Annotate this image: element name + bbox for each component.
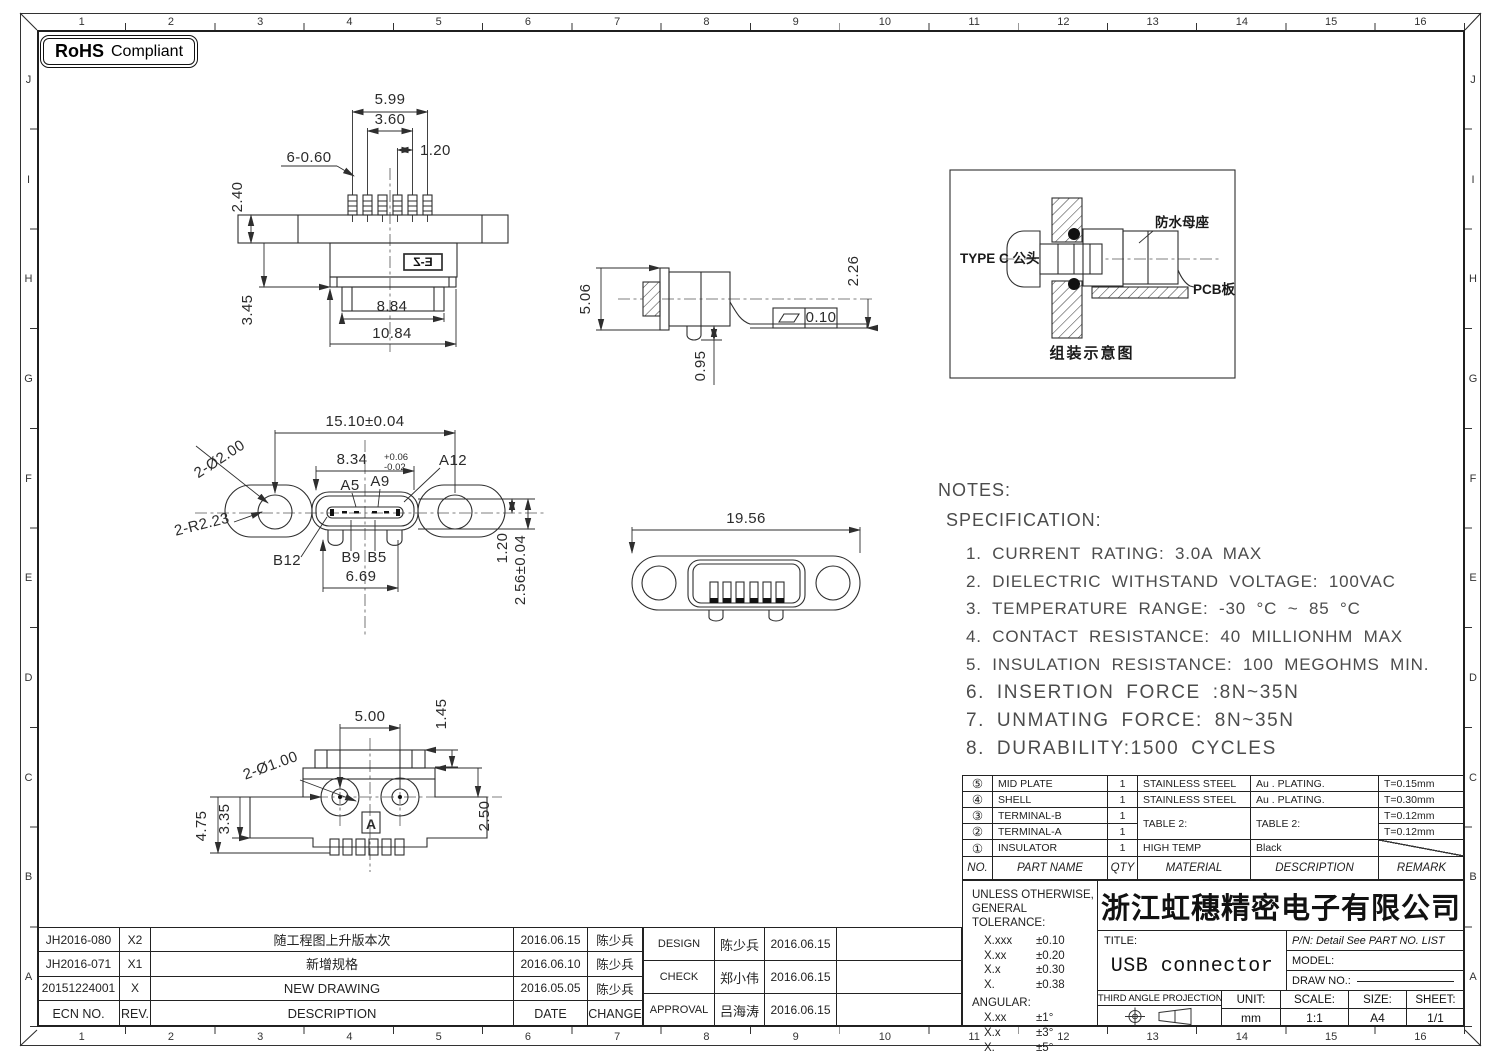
part-remark: T=0.12mm <box>1379 808 1464 824</box>
pin-label-a12: A12 <box>439 452 467 469</box>
third-angle-projection-icon <box>1121 1007 1199 1026</box>
approval-table: DESIGN 陈少兵 2016.06.15 CHECK 郑小伟 2016.06.… <box>643 927 962 1027</box>
part-description-merged: TABLE 2: <box>1251 808 1379 840</box>
part-name: TERMINAL-B <box>993 808 1108 824</box>
dim-base-width: 10.84 <box>372 325 412 342</box>
scale-cell: SCALE: 1:1 <box>1281 991 1349 1026</box>
o-ring-lower <box>1068 278 1080 290</box>
dim-mid-height: 3.45 <box>239 295 256 326</box>
note-item: 1. CURRENT RATING: 3.0A MAX <box>966 544 1478 572</box>
dim-height-body: 3.35 <box>216 804 233 835</box>
notes-block: NOTES: SPECIFICATION: 1. CURRENT RATING:… <box>938 480 1478 766</box>
part-material: STAINLESS STEEL <box>1138 792 1251 808</box>
dim-back-width: 19.56 <box>726 510 766 527</box>
revision-date: 2016.06.10 <box>514 952 588 975</box>
part-name: SHELL <box>993 792 1108 808</box>
revision-description: 随工程图上升版本次 <box>151 928 514 951</box>
flatness-value: 0.10 <box>806 309 837 326</box>
dim-step: 1.45 <box>433 699 450 730</box>
part-description: Au . PLATING. <box>1251 792 1379 808</box>
side-view: 5.06 0.95 2.26 0.10 <box>577 256 874 385</box>
plug-label: TYPE C 公头 <box>960 250 1040 266</box>
angular-tolerance-row: X.x±3° <box>972 1026 1097 1041</box>
part-no: ④ <box>963 792 993 808</box>
o-ring-upper <box>1068 228 1080 240</box>
mount-hole-left <box>642 566 676 600</box>
revision-row: JH2016-080 X2 随工程图上升版本次 2016.06.15 陈少兵 <box>38 928 642 952</box>
sheet-label: SHEET: <box>1407 991 1464 1009</box>
part-no: ③ <box>963 808 993 824</box>
dim-inner-span: 3.60 <box>375 111 406 128</box>
projection-cell: THIRD ANGLE PROJECTION <box>1098 991 1222 1026</box>
approval-signature-blank <box>837 994 961 1026</box>
dim-ear-radius: 2-R2.23 <box>173 510 232 540</box>
size-value: A4 <box>1349 1009 1406 1026</box>
company-name: 浙江虹穗精密电子有限公司 <box>1098 881 1464 931</box>
dim-boss-span: 5.00 <box>355 708 386 725</box>
approval-name: 陈少兵 <box>715 928 765 960</box>
part-no: ⑤ <box>963 776 993 792</box>
revision-description: NEW DRAWING <box>151 977 514 1000</box>
bottom-view: A 5.00 1.45 2-Ø1.00 4.75 3.35 2 <box>193 699 502 872</box>
part-no: ② <box>963 824 993 840</box>
part-remark-slash <box>1379 840 1464 857</box>
angular-label: ANGULAR: <box>972 996 1097 1011</box>
pin-label-a5: A5 <box>340 477 359 494</box>
dim-front-width: 15.10±0.04 <box>326 413 405 430</box>
part-description: Au . PLATING. <box>1251 776 1379 792</box>
unit-value: mm <box>1222 1009 1280 1026</box>
parts-header-remark: REMARK <box>1379 857 1464 879</box>
part-name: INSULATOR <box>993 840 1108 857</box>
dim-tail-height: 2.26 <box>845 256 862 287</box>
revision-rev: X <box>120 977 151 1000</box>
note-item: 2. DIELECTRIC WITHSTAND VOLTAGE: 100VAC <box>966 572 1478 600</box>
title-block: 浙江虹穗精密电子有限公司 TITLE: USB connector P/N: D… <box>1097 880 1465 1027</box>
panel-wall-lower <box>1052 281 1082 338</box>
note-item: 4. CONTACT RESISTANCE: 40 MILLIONHM MAX <box>966 627 1478 655</box>
revision-table: JH2016-080 X2 随工程图上升版本次 2016.06.15 陈少兵 J… <box>37 927 643 1027</box>
dim-height-total: 4.75 <box>193 811 210 842</box>
scale-value: 1:1 <box>1281 1009 1348 1026</box>
approval-date: 2016.06.15 <box>765 928 837 960</box>
scale-label: SCALE: <box>1281 991 1348 1009</box>
revision-change: 陈少兵 <box>588 977 642 1000</box>
angular-tolerance-row: X.xx±1° <box>972 1011 1097 1026</box>
title-label: TITLE: <box>1104 935 1137 947</box>
revision-row: 20151224001 X NEW DRAWING 2016.05.05 陈少兵 <box>38 977 642 1001</box>
revision-header-ecn: ECN NO. <box>38 1001 120 1026</box>
note-item: 7. UNMATING FORCE: 8N~35N <box>966 710 1478 738</box>
draw-no-blank-line <box>1357 980 1454 982</box>
approval-signature-blank <box>837 928 961 960</box>
dim-height-right: 2.50 <box>476 801 493 832</box>
revision-date: 2016.05.05 <box>514 977 588 1000</box>
approval-row: CHECK 郑小伟 2016.06.15 <box>644 961 961 994</box>
dim-cap-width: 8.84 <box>377 298 408 315</box>
revision-header-rev: REV. <box>120 1001 151 1026</box>
dim-ear-holes: 2-Ø2.00 <box>191 437 248 482</box>
drawing-sheet: 12345678910111213141516 1234567891011121… <box>0 0 1502 1059</box>
parts-header-name: PART NAME <box>993 857 1108 879</box>
revision-header-change: CHANGE <box>588 1001 642 1026</box>
approval-name: 郑小伟 <box>715 961 765 993</box>
sheet-cell: SHEET: 1/1 <box>1407 991 1464 1026</box>
size-label: SIZE: <box>1349 991 1406 1009</box>
dim-bar-height: 2.40 <box>229 182 246 213</box>
revision-header-date: DATE <box>514 1001 588 1026</box>
unit-label: UNIT: <box>1222 991 1280 1009</box>
part-qty: 1 <box>1108 808 1138 824</box>
part-qty: 1 <box>1108 840 1138 857</box>
approval-date: 2016.06.15 <box>765 961 837 993</box>
flatness-icon <box>779 314 799 322</box>
mount-hole-right <box>438 495 472 529</box>
part-no: ① <box>963 840 993 857</box>
approval-role: DESIGN <box>644 928 715 960</box>
part-qty: 1 <box>1108 792 1138 808</box>
mount-hole-right <box>816 566 850 600</box>
title-cell: TITLE: USB connector <box>1098 931 1287 990</box>
sheet-value: 1/1 <box>1407 1009 1464 1026</box>
section-marker-a: A <box>362 812 380 833</box>
parts-header-description: DESCRIPTION <box>1251 857 1379 879</box>
mount-hole-left <box>258 495 292 529</box>
top-view: E-Z 5.99 3.60 1.20 6-0.60 2.40 3.45 8.84… <box>229 91 508 352</box>
tolerance-block: UNLESS OTHERWISE, GENERAL TOLERANCE: X.x… <box>962 880 1098 1027</box>
brand-logo-mark: E-Z <box>413 255 432 269</box>
note-item: 8. DURABILITY:1500 CYCLES <box>966 738 1478 766</box>
dim-side-post: 0.95 <box>692 351 709 382</box>
revision-rev: X1 <box>120 952 151 975</box>
revision-header-row: ECN NO. REV. DESCRIPTION DATE CHANGE <box>38 1001 642 1026</box>
tolerance-row: X.xx±0.20 <box>972 949 1097 964</box>
draw-no-row: DRAW NO.: <box>1287 971 1464 990</box>
revision-header-description: DESCRIPTION <box>151 1001 514 1026</box>
assembly-diagram: TYPE C 公头 防水母座 PCB板 组装示意图 <box>950 170 1236 378</box>
dim-tongue-span: 6.69 <box>346 568 377 585</box>
tolerance-row: X.±0.38 <box>972 978 1097 993</box>
revision-row: JH2016-071 X1 新增规格 2016.06.10 陈少兵 <box>38 952 642 976</box>
dim-depth: 2.56±0.04 <box>512 535 529 605</box>
section-marker-label: A <box>366 816 376 832</box>
notes-heading: NOTES: <box>938 480 1478 501</box>
parts-header-material: MATERIAL <box>1138 857 1251 879</box>
pcb-bar <box>1092 287 1188 298</box>
part-remark: T=0.30mm <box>1379 792 1464 808</box>
notes-subheading: SPECIFICATION: <box>946 510 1478 531</box>
parts-header-qty: QTY <box>1108 857 1138 879</box>
socket-label: 防水母座 <box>1155 214 1209 230</box>
revision-ecn: JH2016-080 <box>38 928 120 951</box>
drawing-title: USB connector <box>1098 955 1286 978</box>
tolerance-row: X.x±0.30 <box>972 963 1097 978</box>
approval-role: CHECK <box>644 961 715 993</box>
part-remark: T=0.12mm <box>1379 824 1464 840</box>
part-name: MID PLATE <box>993 776 1108 792</box>
approval-date: 2016.06.15 <box>765 994 837 1026</box>
note-item: 3. TEMPERATURE RANGE: -30 °C ~ 85 °C <box>966 599 1478 627</box>
front-view: 15.10±0.04 8.34 +0.06 -0.02 A12 A5 A9 2-… <box>173 413 545 635</box>
revision-date: 2016.06.15 <box>514 928 588 951</box>
note-item: 5. INSULATION RESISTANCE: 100 MEGOHMS MI… <box>966 655 1478 683</box>
part-qty: 1 <box>1108 776 1138 792</box>
revision-description: 新增规格 <box>151 952 514 975</box>
dim-pitch: 1.20 <box>420 142 451 159</box>
dim-opening-tol-minus: -0.02 <box>384 462 406 473</box>
dim-bottom-holes: 2-Ø1.00 <box>241 748 300 783</box>
tolerance-row: X.xxx±0.10 <box>972 934 1097 949</box>
assembly-caption: 组装示意图 <box>1049 344 1134 362</box>
approval-name: 吕海涛 <box>715 994 765 1026</box>
approval-role: APPROVAL <box>644 994 715 1026</box>
pin-label-b5: B5 <box>367 549 386 566</box>
note-item: 6. INSERTION FORCE :8N~35N <box>966 682 1478 710</box>
dim-opening: 8.34 <box>337 451 368 468</box>
revision-ecn: 20151224001 <box>38 977 120 1000</box>
dim-tongue-offset: 1.20 <box>494 533 511 564</box>
dim-pin-width: 6-0.60 <box>287 149 332 166</box>
projection-label: THIRD ANGLE PROJECTION <box>1098 991 1221 1006</box>
unit-cell: UNIT: mm <box>1222 991 1281 1026</box>
part-description: Black <box>1251 840 1379 857</box>
part-name: TERMINAL-A <box>993 824 1108 840</box>
draw-no-label: DRAW NO.: <box>1292 975 1351 987</box>
revision-rev: X2 <box>120 928 151 951</box>
parts-table: ⑤ MID PLATE 1 STAINLESS STEEL Au . PLATI… <box>962 775 1465 880</box>
tolerance-line1: UNLESS OTHERWISE, <box>972 888 1097 902</box>
part-material: HIGH TEMP <box>1138 840 1251 857</box>
approval-row: DESIGN 陈少兵 2016.06.15 <box>644 928 961 961</box>
part-material-merged: TABLE 2: <box>1138 808 1251 840</box>
pin-label-a9: A9 <box>370 473 389 490</box>
pcb-label: PCB板 <box>1193 281 1236 297</box>
dim-pin-span: 5.99 <box>375 91 406 108</box>
part-remark: T=0.15mm <box>1379 776 1464 792</box>
pin-label-b12: B12 <box>273 552 301 569</box>
part-material: STAINLESS STEEL <box>1138 776 1251 792</box>
revision-change: 陈少兵 <box>588 952 642 975</box>
part-number-note: P/N: Detail See PART NO. LIST <box>1287 931 1464 951</box>
dim-side-height: 5.06 <box>577 284 594 315</box>
parts-header-no: NO. <box>963 857 993 879</box>
approval-row: APPROVAL 吕海涛 2016.06.15 <box>644 994 961 1026</box>
pin-label-b9: B9 <box>341 549 360 566</box>
part-qty: 1 <box>1108 824 1138 840</box>
back-view-pins <box>710 582 784 603</box>
tolerance-line2: GENERAL TOLERANCE: <box>972 902 1097 930</box>
revision-ecn: JH2016-071 <box>38 952 120 975</box>
flatness-tolerance-frame: 0.10 <box>773 308 837 328</box>
approval-signature-blank <box>837 961 961 993</box>
back-view: 19.56 <box>632 510 860 621</box>
angular-tolerance-row: X.±5° <box>972 1041 1097 1056</box>
revision-change: 陈少兵 <box>588 928 642 951</box>
size-cell: SIZE: A4 <box>1349 991 1407 1026</box>
model-label: MODEL: <box>1287 951 1464 971</box>
